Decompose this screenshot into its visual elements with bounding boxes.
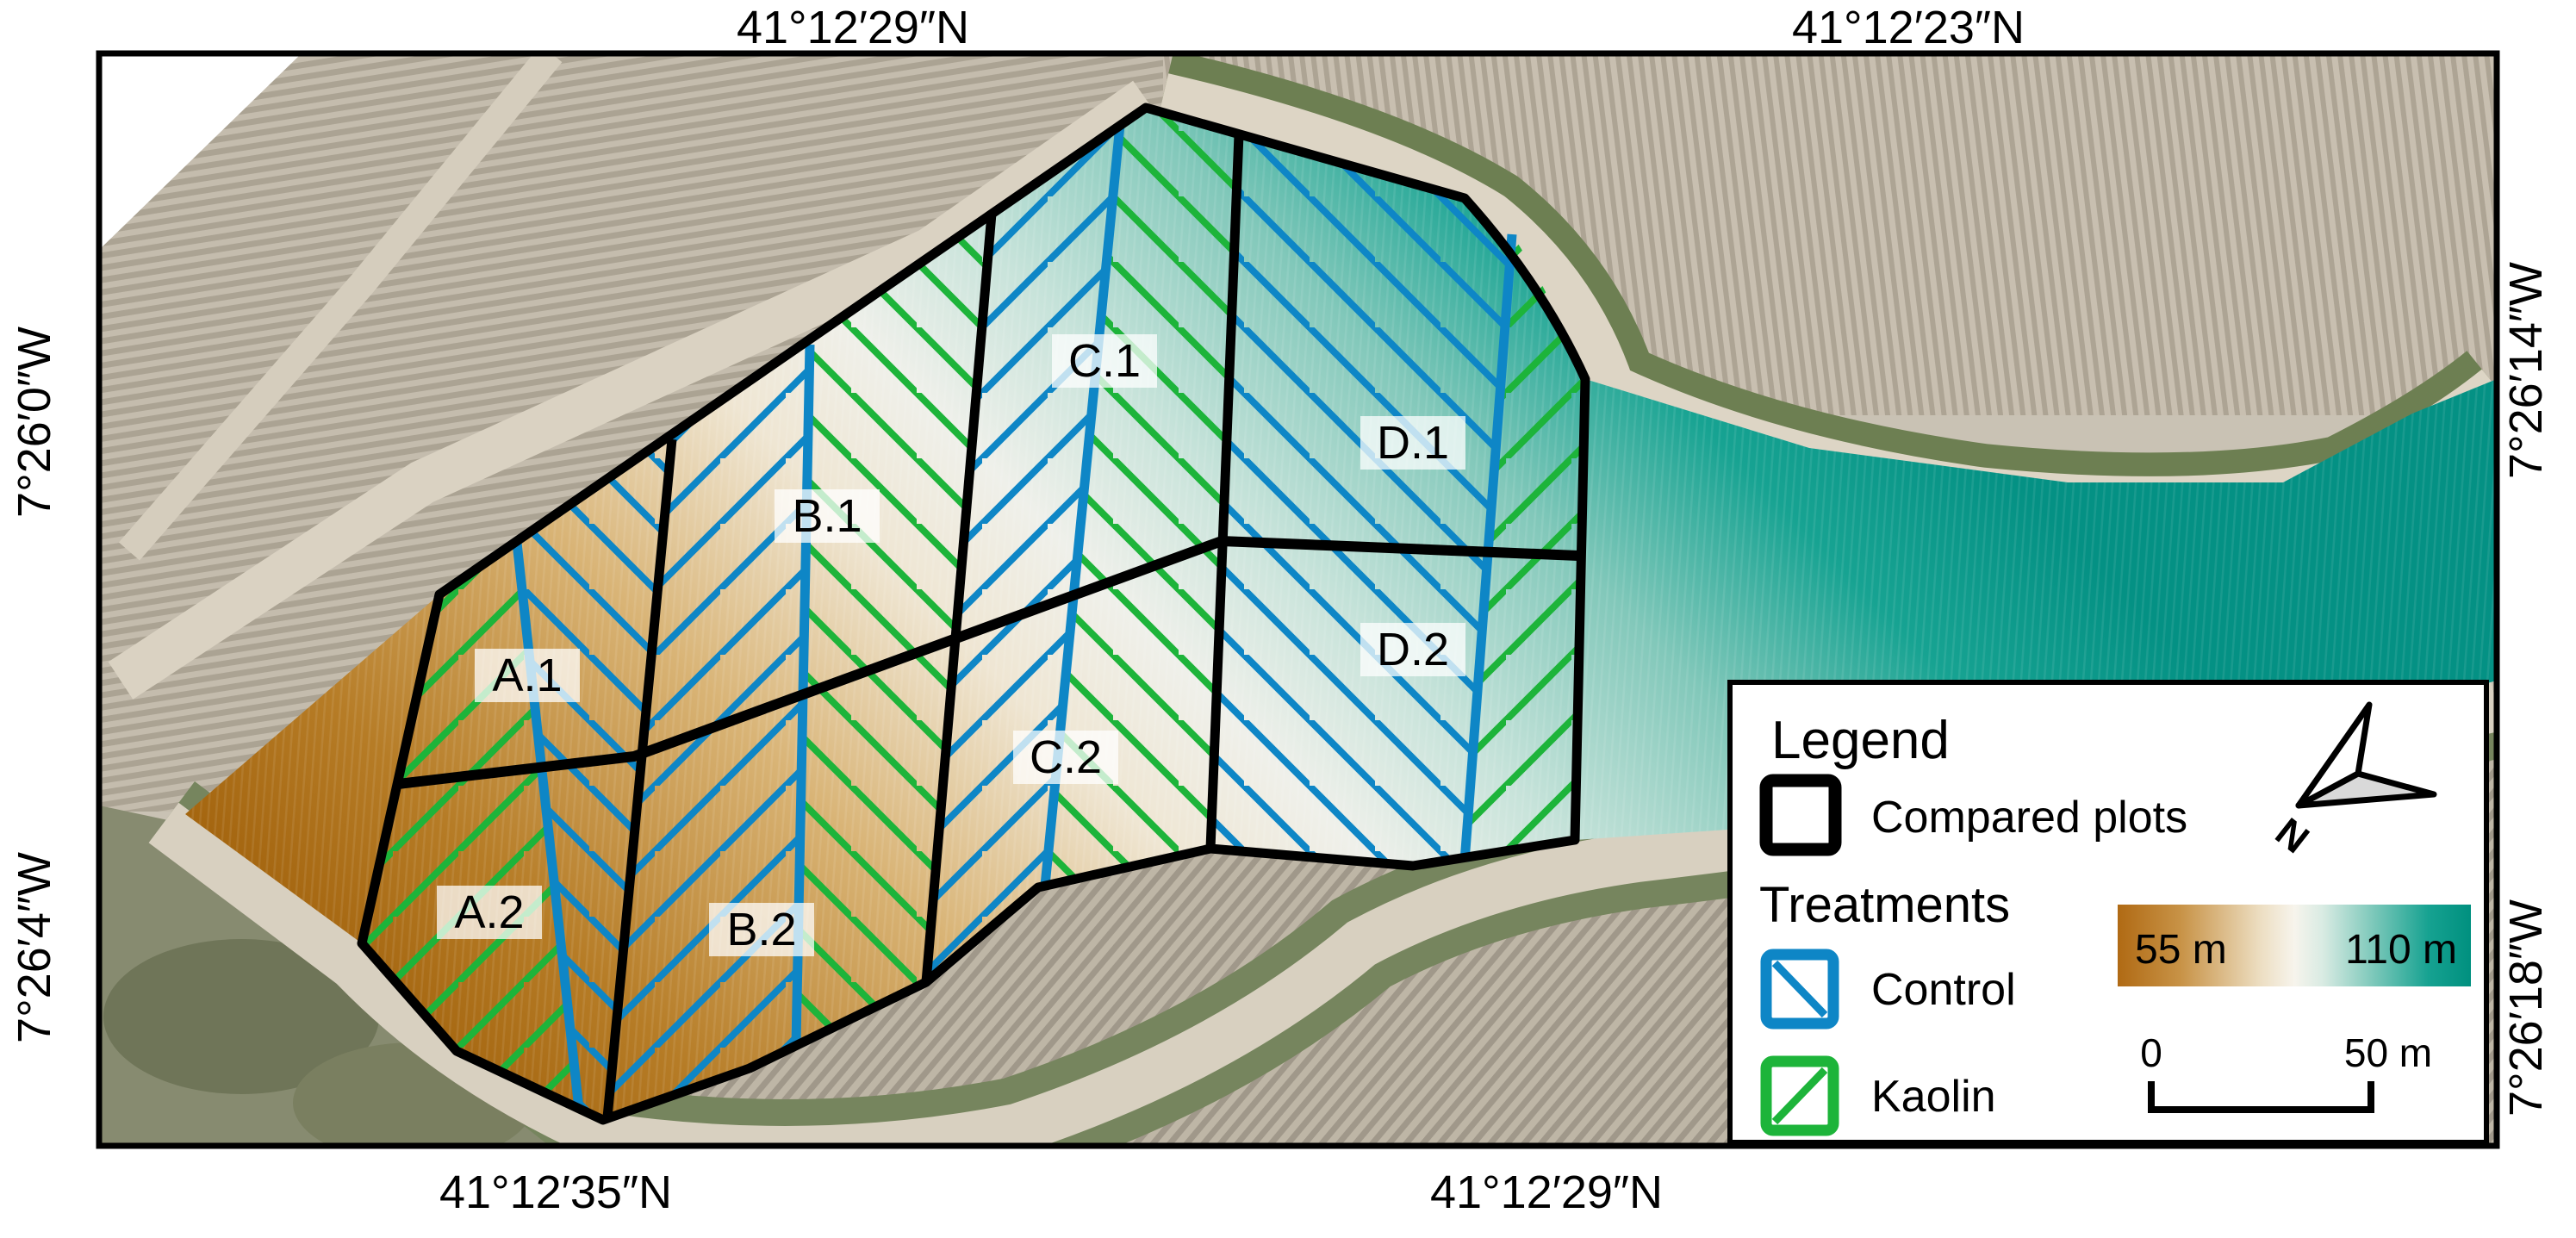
study-site-map-figure: A.1 A.2 B.1 B.2 C.1 C.2 D.1 D.2 [0,0,2576,1238]
coord-label-left-upper: 7°26′0″W [9,327,60,518]
plot-label-B2: B.2 [709,903,814,956]
plot-label-C2: C.2 [1013,731,1118,784]
plot-label-C1: C.1 [1052,334,1157,388]
plot-label-text: C.2 [1030,731,1102,783]
plot-label-text: A.2 [454,887,524,938]
plot-label-text: A.1 [492,650,562,701]
plot-label-text: D.2 [1377,624,1449,675]
plot-label-text: C.1 [1068,335,1141,387]
coord-label-left-lower: 7°26′4″W [9,852,60,1043]
elevation-ramp: 55 m 110 m [2118,905,2471,986]
coord-label-bottom-right: 41°12′29″N [1430,1166,1663,1218]
legend: Legend Compared plots N Treatments Contr… [1730,682,2486,1142]
coord-label-top-right: 41°12′23″N [1792,2,2025,53]
legend-title: Legend [1771,711,1950,770]
scale-zero-label: 0 [2140,1030,2162,1075]
plot-label-D1: D.1 [1360,416,1465,470]
plot-label-text: B.2 [726,904,796,955]
elevation-max-label: 110 m [2345,927,2457,973]
coord-label-right-upper: 7°26′14″W [2500,262,2552,479]
plot-label-D2: D.2 [1360,623,1465,676]
kaolin-swatch-icon [1766,1061,1833,1130]
coord-label-right-lower: 7°26′18″W [2500,899,2552,1117]
control-swatch-icon [1766,955,1833,1023]
treatments-heading: Treatments [1759,877,2010,933]
compared-plots-label: Compared plots [1871,793,2187,843]
elevation-min-label: 55 m [2135,927,2227,973]
kaolin-label: Kaolin [1871,1072,1996,1122]
control-label: Control [1871,965,2016,1015]
map-svg: A.1 A.2 B.1 B.2 C.1 C.2 D.1 D.2 [0,0,2576,1238]
scale-length-label: 50 m [2344,1030,2432,1075]
coord-label-bottom-left: 41°12′35″N [439,1166,672,1218]
compared-plots-swatch-icon [1766,781,1835,849]
coord-label-top-left: 41°12′29″N [737,2,969,53]
plot-label-text: D.1 [1377,417,1449,469]
plot-label-text: B.1 [792,490,862,542]
hatch-D-left-control [1210,134,1512,866]
plot-label-B1: B.1 [775,489,880,543]
plot-label-A2: A.2 [437,886,542,939]
plot-label-A1: A.1 [475,649,580,702]
